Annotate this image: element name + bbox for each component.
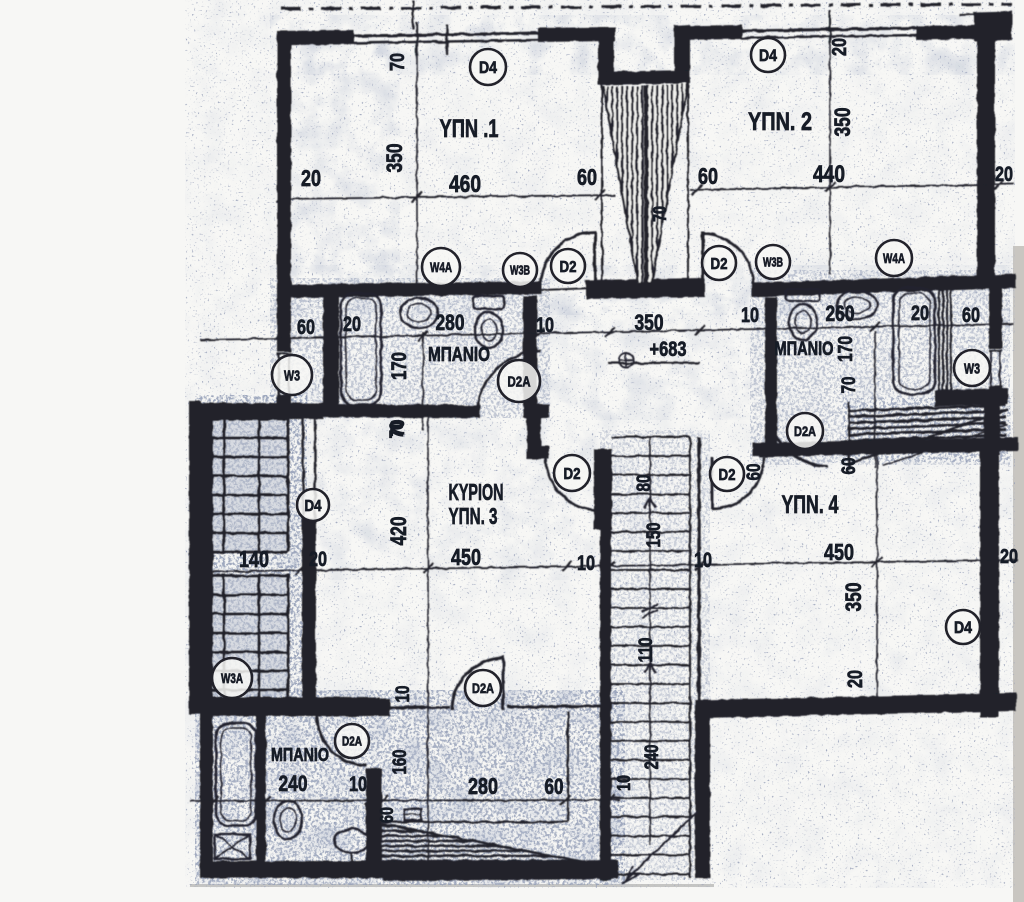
svg-text:60: 60 [577,164,597,190]
svg-text:ΚΥΡΙΟΝ: ΚΥΡΙΟΝ [449,479,504,505]
svg-text:ΜΠΑΝΙΟ: ΜΠΑΝΙΟ [428,344,490,366]
svg-text:20: 20 [844,670,867,688]
svg-text:D2: D2 [560,259,577,276]
svg-text:ΜΠΑΝΙΟ: ΜΠΑΝΙΟ [775,339,834,360]
svg-text:W3: W3 [284,367,300,384]
svg-text:350: 350 [830,108,855,137]
svg-text:20: 20 [1000,546,1018,568]
svg-text:60: 60 [377,807,397,823]
svg-text:60: 60 [744,464,765,481]
svg-text:20: 20 [995,163,1013,186]
svg-text:D4: D4 [759,46,777,65]
svg-text:440: 440 [813,161,845,188]
svg-text:10: 10 [577,552,595,575]
svg-text:350: 350 [841,583,866,612]
svg-text:D2: D2 [719,467,736,484]
svg-text:150: 150 [644,523,665,548]
svg-text:20: 20 [309,548,327,571]
svg-text:170: 170 [388,352,411,380]
svg-text:350: 350 [635,310,664,335]
svg-text:10: 10 [614,775,634,791]
svg-text:W3: W3 [964,360,980,377]
svg-text:240: 240 [642,745,663,770]
svg-text:170: 170 [835,336,857,362]
svg-text:140: 140 [239,546,269,572]
svg-text:280: 280 [436,310,465,335]
svg-text:W3A: W3A [221,670,243,686]
svg-text:D2: D2 [564,466,581,483]
svg-text:60: 60 [545,774,564,799]
svg-text:20: 20 [343,313,361,336]
svg-text:280: 280 [468,773,498,799]
svg-text:D2A: D2A [508,373,531,390]
svg-text:20: 20 [301,165,321,191]
svg-text:20: 20 [911,302,929,325]
svg-text:ΥΠΝ. 3: ΥΠΝ. 3 [449,503,498,529]
svg-text:D2A: D2A [794,423,816,439]
svg-text:D4: D4 [479,58,497,77]
svg-text:ΥΠΝ .1: ΥΠΝ .1 [440,115,499,143]
svg-text:70: 70 [650,206,670,222]
svg-text:420: 420 [386,517,411,546]
svg-text:W3B: W3B [763,255,783,270]
svg-text:D4: D4 [305,498,322,515]
svg-text:10: 10 [694,549,712,572]
svg-text:D2A: D2A [472,680,494,696]
svg-text:60: 60 [962,304,980,327]
svg-text:ΥΠΝ. 2: ΥΠΝ. 2 [748,108,812,136]
svg-text:W4A: W4A [430,259,452,275]
svg-text:70: 70 [388,420,409,437]
svg-text:110: 110 [636,638,657,663]
svg-text:10: 10 [741,304,759,327]
svg-text:460: 460 [449,171,481,198]
svg-text:D2A: D2A [342,734,362,749]
svg-text:10: 10 [393,686,414,703]
svg-text:70: 70 [839,377,860,394]
svg-text:350: 350 [382,144,407,173]
svg-text:ΜΠΑΝΙΟ: ΜΠΑΝΙΟ [271,745,329,765]
svg-text:D2: D2 [711,256,728,273]
svg-text:60: 60 [839,458,860,475]
svg-text:60: 60 [297,316,315,339]
svg-text:450: 450 [824,539,854,565]
svg-text:260: 260 [826,301,855,326]
svg-text:20: 20 [829,38,851,56]
svg-text:450: 450 [451,544,481,570]
svg-text:160: 160 [390,750,411,775]
svg-text:240: 240 [279,771,308,796]
svg-text:W3B: W3B [510,263,530,278]
svg-text:D4: D4 [954,618,972,637]
svg-text:10: 10 [536,314,554,337]
svg-text:W4A: W4A [883,250,905,266]
svg-text:10: 10 [349,773,367,796]
svg-text:+683: +683 [650,338,687,361]
svg-text:80: 80 [634,475,655,492]
svg-text:70: 70 [387,53,409,71]
svg-text:60: 60 [698,163,718,189]
svg-text:ΥΠΝ. 4: ΥΠΝ. 4 [782,491,839,519]
